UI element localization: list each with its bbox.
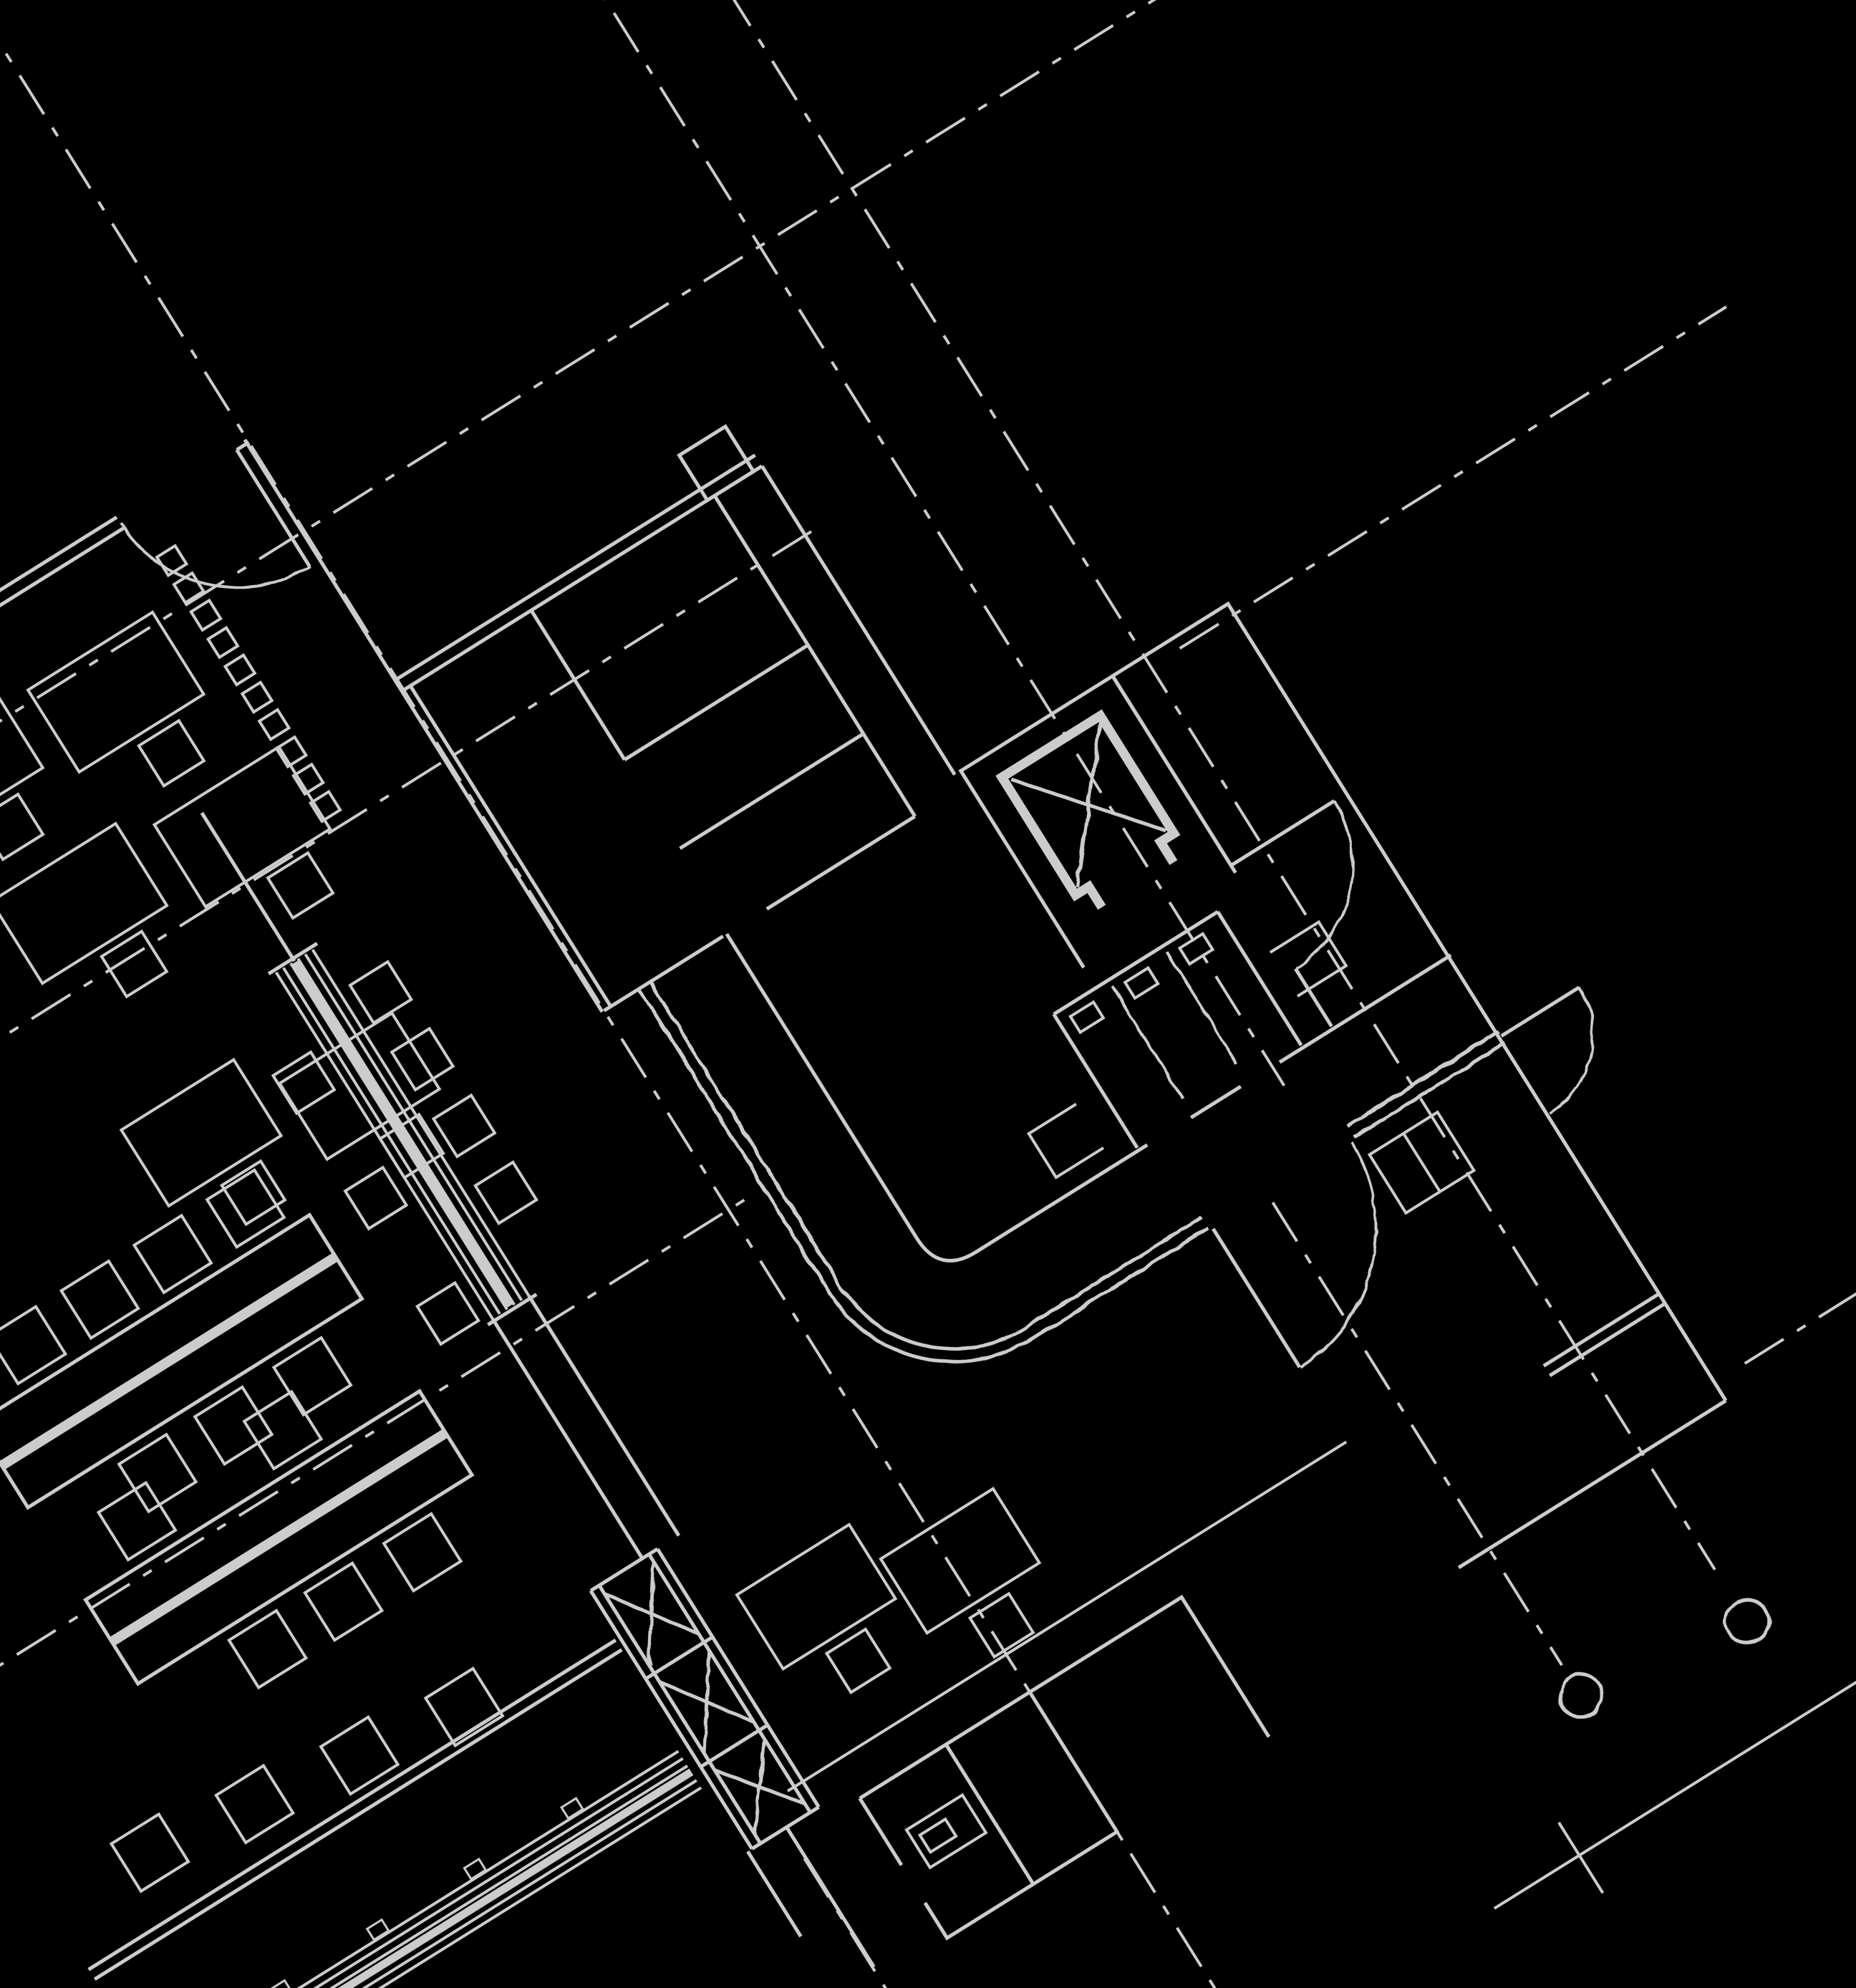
door-arc	[1231, 801, 1398, 968]
grid-bubbles	[1551, 1570, 1777, 1747]
chair	[827, 1629, 890, 1692]
chair	[274, 1338, 350, 1414]
dash-dot-line	[1272, 1202, 1562, 1665]
floor-plan-drawing	[0, 0, 1856, 1988]
toilet-partitions	[1112, 952, 1237, 1099]
locker	[208, 628, 238, 657]
tick	[367, 1920, 389, 1940]
desk	[737, 1525, 896, 1669]
elevator	[961, 676, 1236, 968]
fixture	[1180, 934, 1213, 964]
fixture	[1070, 1002, 1103, 1032]
chair	[417, 1283, 478, 1343]
room-divider	[946, 1745, 1033, 1884]
wall	[788, 1442, 1346, 1791]
tick	[561, 1798, 583, 1818]
corridor-inner-wall	[727, 614, 1451, 1275]
east-room-walls	[961, 604, 1726, 1568]
south-rooms	[788, 1442, 1457, 1968]
plan-linework	[0, 0, 1856, 1988]
wall	[397, 455, 762, 690]
locker	[242, 682, 271, 712]
chair	[0, 794, 43, 859]
counter-open-box	[1029, 1104, 1103, 1177]
chair	[229, 1611, 306, 1687]
door-arc	[1502, 988, 1628, 1114]
locker	[191, 600, 221, 629]
dash-dot-line	[1180, 307, 1726, 648]
east-rooms	[937, 554, 1806, 1583]
chair	[195, 1387, 271, 1464]
chair	[350, 962, 411, 1023]
closet-divider	[1403, 1134, 1440, 1192]
dash-dot-line	[587, 0, 1715, 1570]
dash-dot-line	[290, 0, 1284, 1086]
door-leaf	[1231, 801, 1334, 865]
chair	[305, 1563, 382, 1640]
door-arc	[1213, 1142, 1438, 1367]
chair	[244, 1391, 321, 1468]
grid-bubble	[1718, 1592, 1777, 1651]
tick	[270, 1980, 291, 1988]
door-swing-arc	[1502, 988, 1628, 1114]
chair	[139, 720, 204, 786]
chair	[384, 1514, 460, 1591]
west-wing-wall	[89, 1640, 622, 1979]
partition-core	[295, 962, 510, 1306]
locker	[259, 710, 289, 739]
dash-dot-line	[0, 524, 823, 1389]
tick	[464, 1859, 485, 1879]
wall	[715, 496, 915, 816]
fixture	[907, 1795, 986, 1868]
fixture	[1125, 968, 1158, 998]
chair	[345, 1167, 406, 1228]
toilet-walls	[1054, 912, 1302, 1148]
stair-shaft	[586, 1549, 906, 1988]
desk	[881, 1489, 1040, 1633]
closet	[1370, 1112, 1474, 1213]
desk	[280, 1013, 440, 1159]
desk	[0, 824, 167, 983]
toilet-fixtures	[1070, 934, 1213, 1033]
room-walls	[1030, 1597, 1269, 1832]
chair	[62, 1261, 138, 1338]
north-wing-walls	[245, 215, 962, 1012]
west-wing-tables	[0, 1139, 622, 1979]
chair	[112, 1814, 188, 1891]
floor-plan-canvas	[0, 0, 1856, 1988]
locker	[225, 655, 254, 685]
site-boundary-line	[1494, 1164, 1856, 1909]
nw-desks	[0, 574, 359, 1066]
dash-dot-line	[0, 1195, 753, 1840]
dash-dot-line	[804, 1858, 1199, 1988]
chair	[475, 1162, 536, 1223]
site-boundary-tick	[1559, 1823, 1603, 1893]
desk	[28, 612, 203, 772]
column-grid-lines	[0, 0, 1856, 1988]
door-swing-arc	[1231, 801, 1398, 968]
grid-bubble	[1551, 1666, 1610, 1725]
chair	[216, 1766, 293, 1843]
plan-rotated-group	[0, 0, 1856, 1988]
stair-x-bracing-symbol	[604, 1563, 805, 1835]
door-leaf	[1502, 988, 1580, 1036]
dash-dot-line	[0, 0, 1349, 1161]
chair	[434, 1096, 495, 1157]
site-boundary	[1474, 1132, 1856, 1946]
door-leaf	[1213, 1229, 1300, 1367]
dash-dot-line	[1745, 1079, 1856, 1363]
toilet-block	[982, 869, 1370, 1193]
chair	[134, 1215, 211, 1292]
door-swing-arc	[1213, 1142, 1438, 1367]
stair-extension-walls	[748, 1827, 874, 1988]
desk	[121, 1060, 281, 1206]
north-west-wing	[0, 437, 475, 1089]
partition-core	[108, 1772, 691, 1988]
fixture	[920, 1819, 956, 1852]
